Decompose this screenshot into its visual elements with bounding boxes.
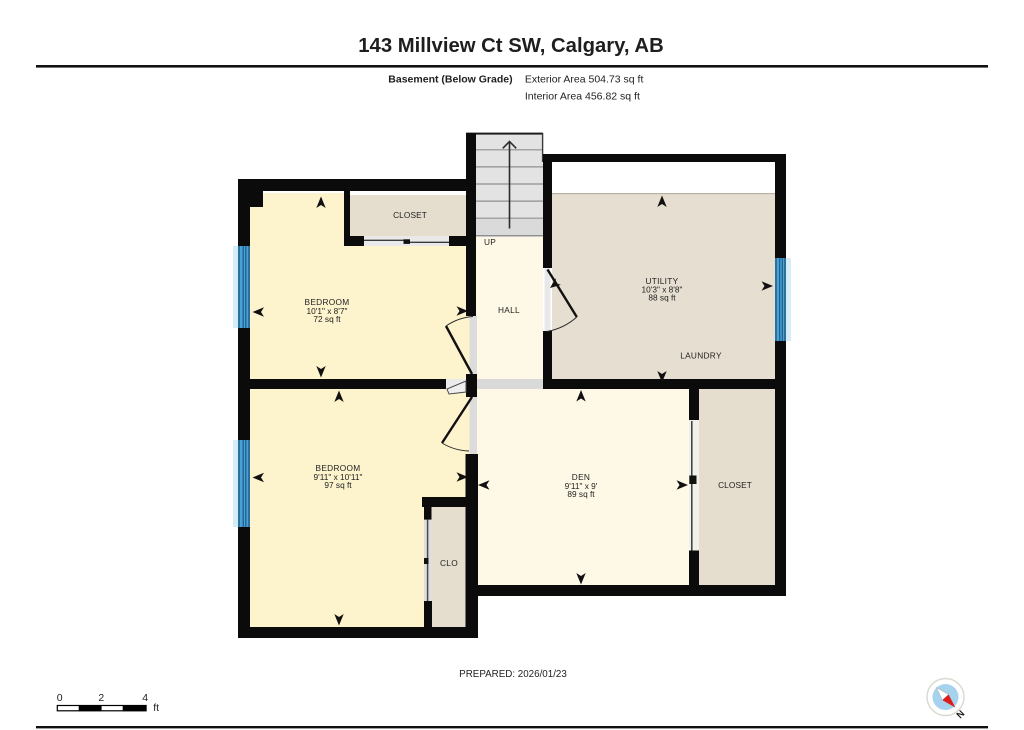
svg-text:CLOSET: CLOSET (393, 210, 427, 220)
svg-text:89 sq ft: 89 sq ft (567, 489, 595, 499)
svg-text:4: 4 (142, 692, 148, 704)
svg-text:88 sq ft: 88 sq ft (648, 293, 676, 303)
svg-text:PREPARED: 2026/01/23: PREPARED: 2026/01/23 (459, 669, 567, 680)
svg-text:2: 2 (98, 692, 104, 704)
svg-text:ft: ft (153, 702, 159, 714)
svg-text:Basement (Below Grade): Basement (Below Grade) (388, 74, 512, 86)
svg-text:0: 0 (57, 692, 63, 704)
svg-text:143 Millview Ct SW, Calgary, A: 143 Millview Ct SW, Calgary, AB (358, 35, 663, 57)
svg-text:UP: UP (484, 237, 496, 247)
svg-text:LAUNDRY: LAUNDRY (680, 351, 722, 361)
svg-text:CLO: CLO (440, 558, 458, 568)
svg-text:CLOSET: CLOSET (718, 480, 752, 490)
svg-text:72 sq ft: 72 sq ft (313, 314, 341, 324)
svg-text:HALL: HALL (498, 305, 520, 315)
svg-text:Exterior Area 504.73 sq ft: Exterior Area 504.73 sq ft (525, 74, 644, 86)
svg-text:97 sq ft: 97 sq ft (324, 480, 352, 490)
svg-text:Interior Area 456.82 sq ft: Interior Area 456.82 sq ft (525, 91, 640, 103)
